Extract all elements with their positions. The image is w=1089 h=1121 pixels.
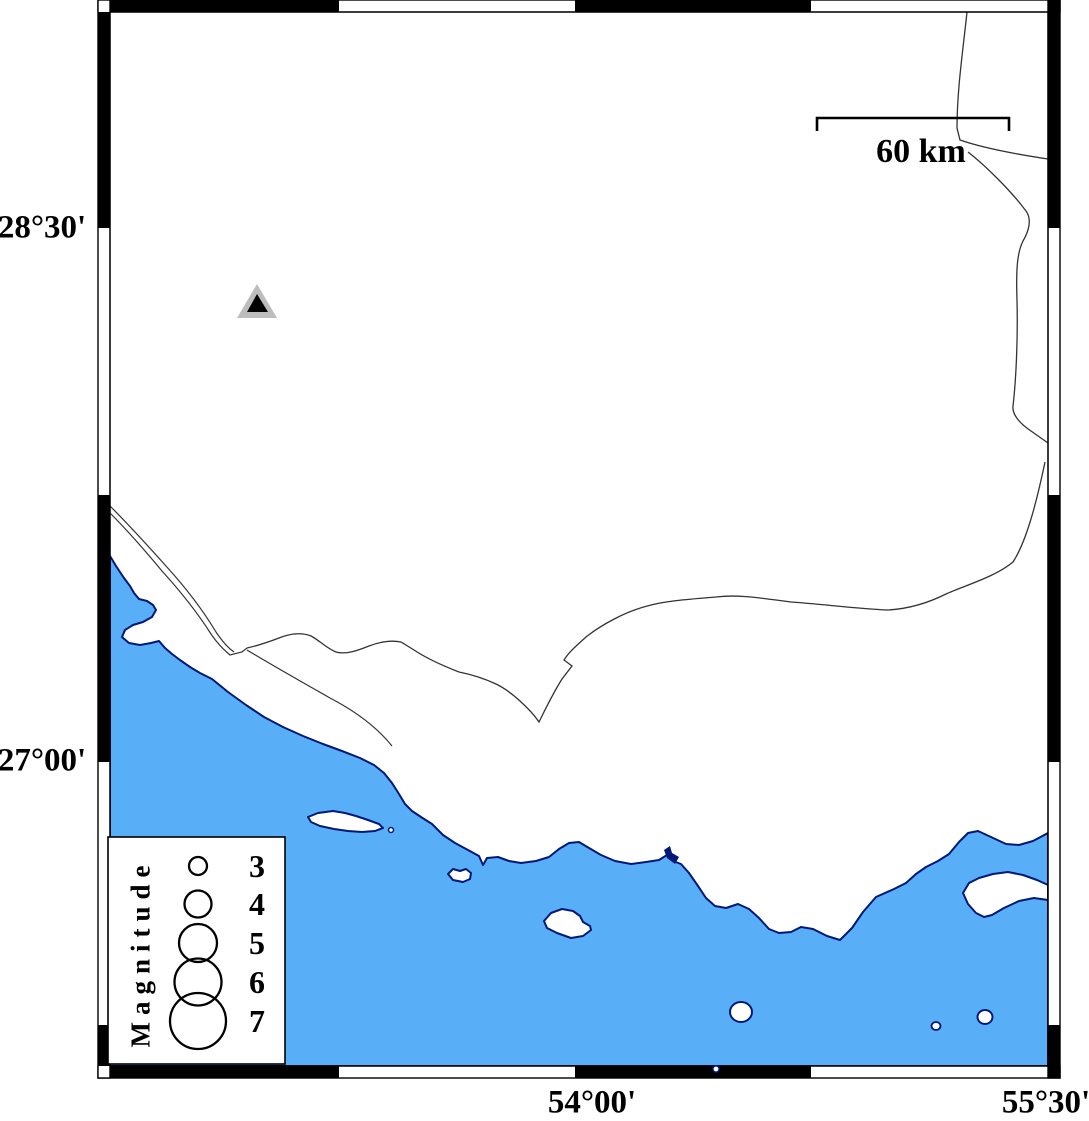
legend-label-5: 5 xyxy=(249,927,265,959)
frame-seg xyxy=(98,495,110,762)
lat-label-2700: 27°00' xyxy=(0,745,86,778)
frame-seg xyxy=(1048,0,1060,12)
frame-seg xyxy=(575,1066,811,1078)
scale-bar-bracket xyxy=(817,118,1009,131)
boundary-line-east xyxy=(968,152,1048,443)
islet-dot xyxy=(389,828,394,833)
island-tiny xyxy=(932,1022,941,1030)
earthquake-marker xyxy=(713,1066,719,1072)
legend-label-6: 6 xyxy=(249,966,265,998)
legend-label-4: 4 xyxy=(249,888,265,920)
boundary-line-long xyxy=(247,462,1045,722)
lon-label-5400: 54°00' xyxy=(548,1087,636,1120)
frame-seg xyxy=(110,1066,339,1078)
frame-seg xyxy=(1048,1066,1060,1078)
scale-bar-label: 60 km xyxy=(876,135,966,169)
lon-label-5530: 55°30' xyxy=(1002,1087,1089,1120)
boundary-line-double-a xyxy=(110,506,234,652)
frame-seg xyxy=(1048,12,1060,228)
frame-seg xyxy=(98,12,110,228)
frame-seg xyxy=(1048,495,1060,762)
legend-label-7: 7 xyxy=(249,1005,265,1037)
boundary-line-north xyxy=(957,12,1048,159)
island-small-round xyxy=(978,1010,993,1024)
frame-seg xyxy=(575,0,811,12)
legend-title: Magnitude xyxy=(128,858,155,1047)
island-round xyxy=(730,1002,752,1022)
frame-seg xyxy=(1048,1025,1060,1066)
boundary-line-double-b xyxy=(110,513,247,655)
map-page: 28°30' 27°00' 54°00' 55°30' 60 km Magnit… xyxy=(0,0,1089,1121)
legend-label-3: 3 xyxy=(249,850,265,882)
lat-label-2830: 28°30' xyxy=(0,212,86,245)
frame-seg xyxy=(110,0,339,12)
